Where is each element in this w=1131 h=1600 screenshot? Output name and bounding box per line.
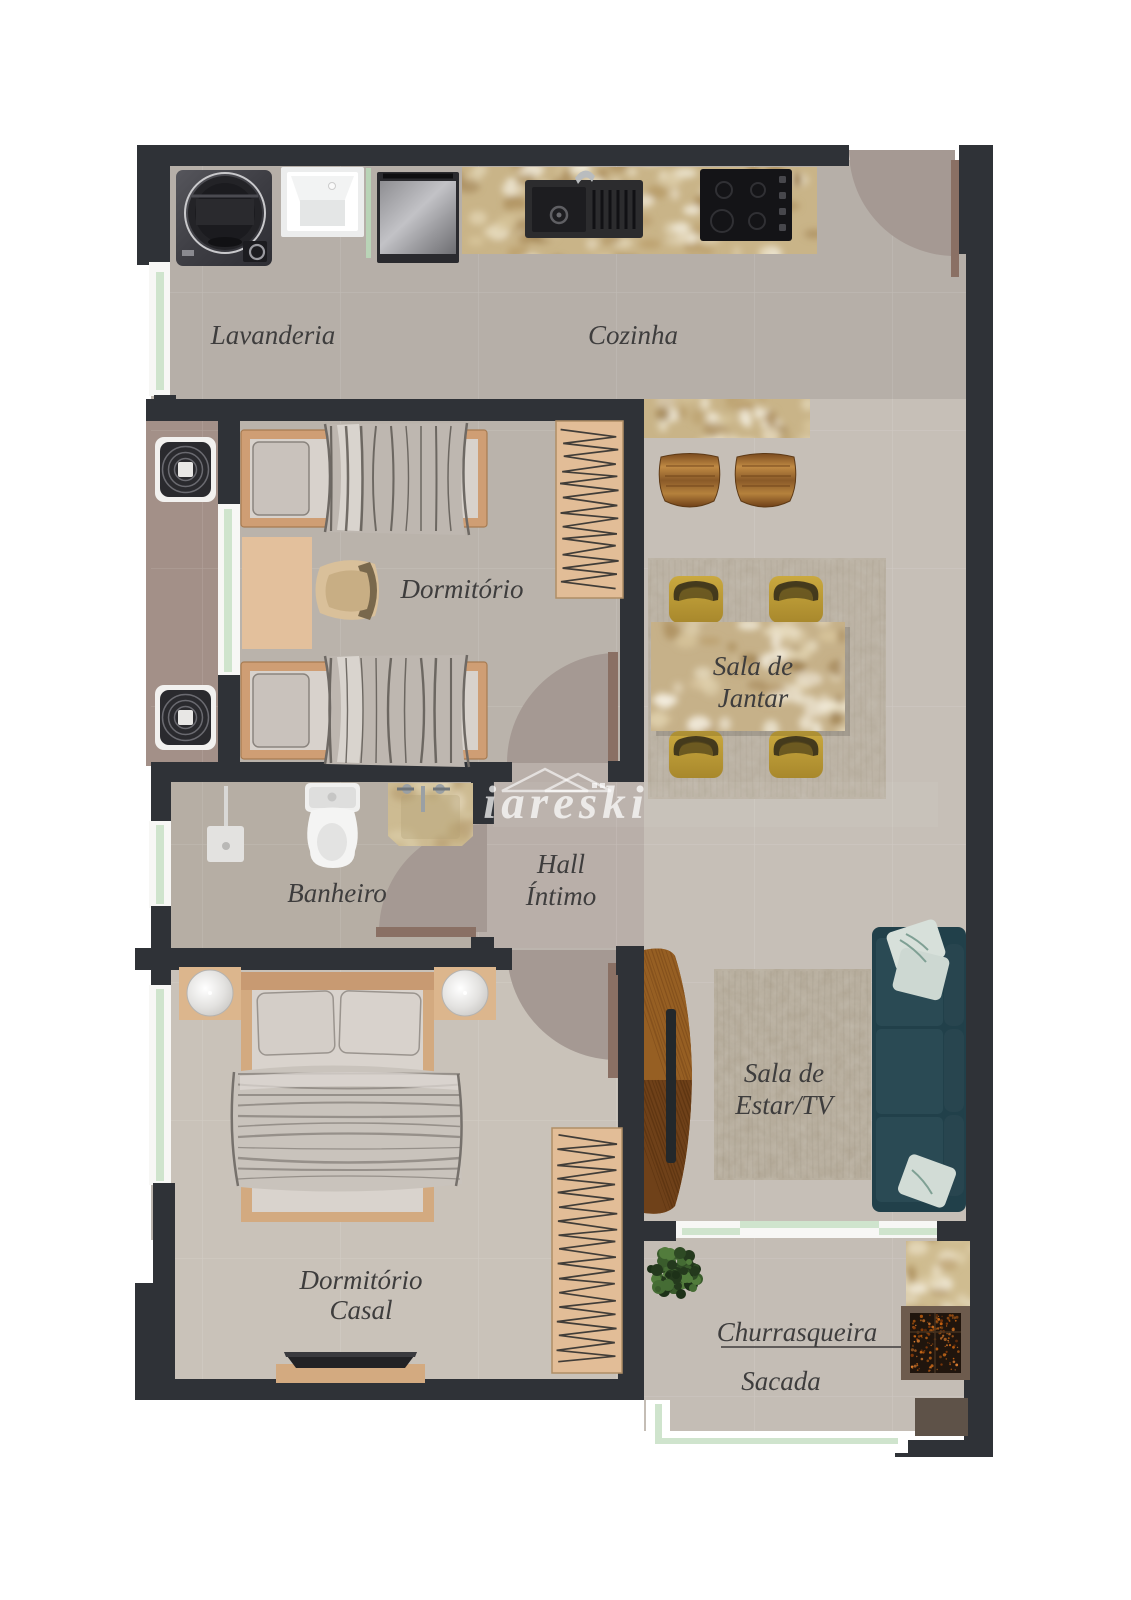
svg-text:Sacada: Sacada	[741, 1366, 820, 1396]
svg-text:Jantar: Jantar	[718, 683, 789, 713]
svg-text:Hall: Hall	[536, 849, 585, 879]
svg-text:Sala de: Sala de	[713, 651, 793, 681]
svg-text:Estar/TV: Estar/TV	[734, 1090, 836, 1120]
svg-text:Íntimo: Íntimo	[525, 881, 597, 911]
svg-text:Casal: Casal	[329, 1295, 392, 1325]
svg-text:Cozinha: Cozinha	[588, 320, 678, 350]
svg-text:Churrasqueira: Churrasqueira	[717, 1317, 878, 1347]
svg-text:Lavanderia: Lavanderia	[210, 320, 336, 350]
svg-text:Dormitório: Dormitório	[298, 1265, 422, 1295]
svg-text:Sala de: Sala de	[744, 1058, 824, 1088]
svg-text:Dormitório: Dormitório	[399, 574, 523, 604]
svg-text:iareski: iareski	[483, 777, 649, 829]
svg-text:Banheiro: Banheiro	[287, 878, 386, 908]
